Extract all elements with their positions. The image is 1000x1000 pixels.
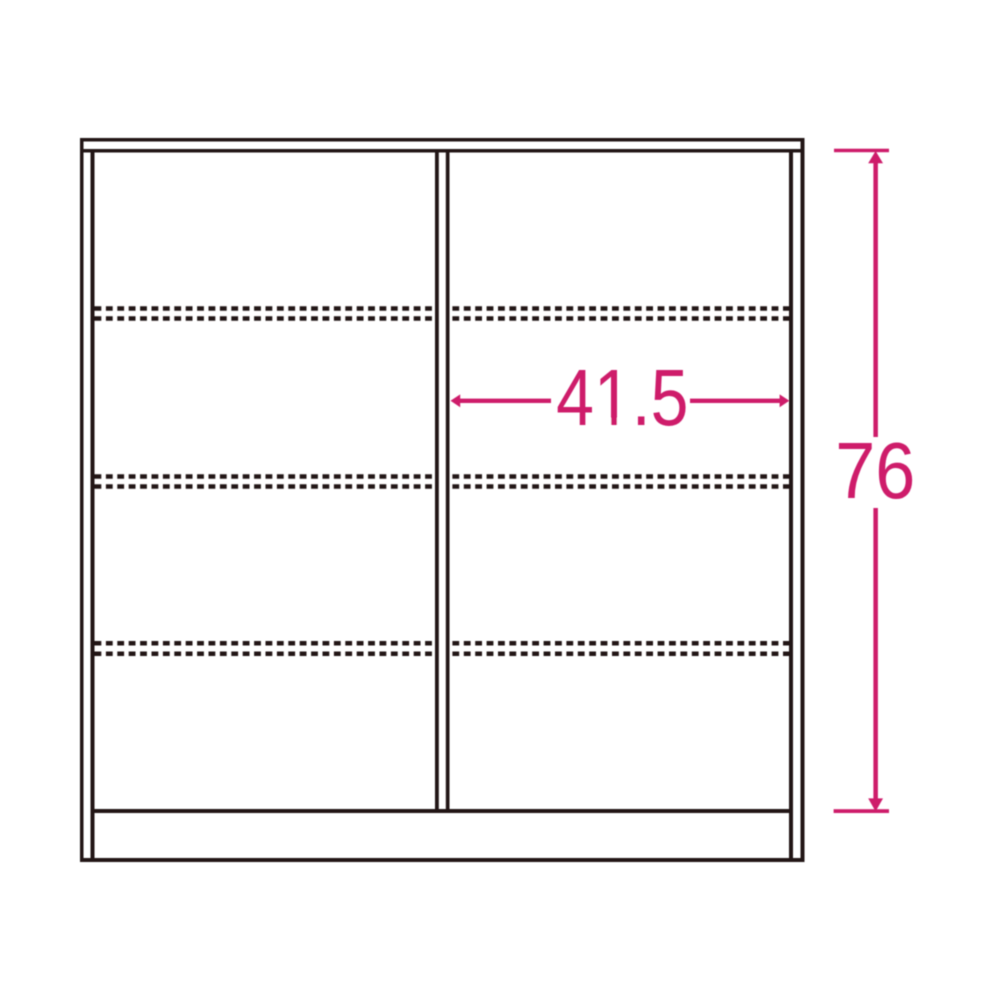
- svg-text:76: 76: [835, 427, 915, 516]
- svg-text:41.5: 41.5: [556, 353, 688, 442]
